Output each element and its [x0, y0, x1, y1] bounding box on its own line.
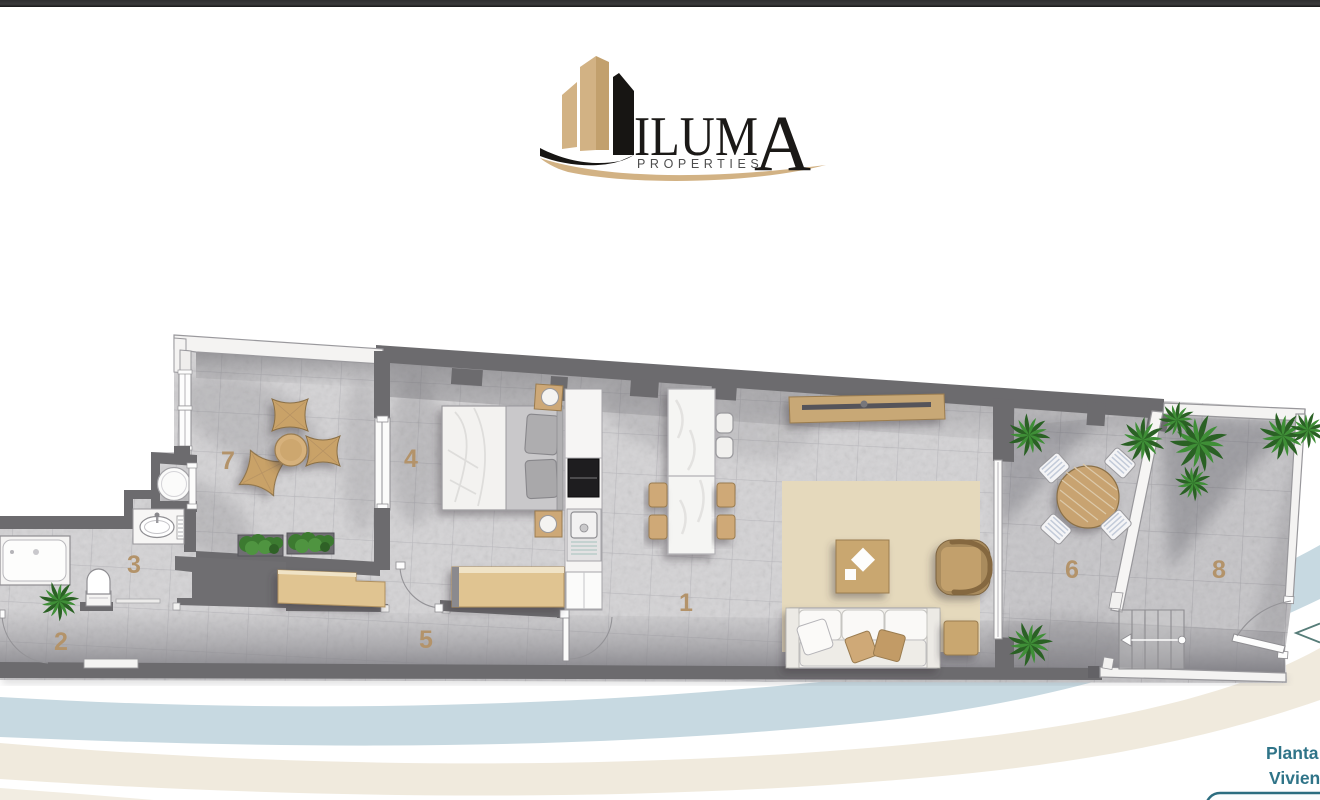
- svg-text:A: A: [754, 101, 811, 188]
- svg-text:6: 6: [1065, 556, 1079, 584]
- svg-text:PROPERTIES: PROPERTIES: [637, 157, 763, 171]
- svg-text:3: 3: [127, 551, 141, 579]
- svg-text:2: 2: [54, 628, 68, 656]
- svg-text:7: 7: [221, 447, 235, 475]
- svg-text:1: 1: [679, 589, 693, 617]
- svg-text:8: 8: [1212, 556, 1226, 584]
- svg-text:Vivienda 1: Vivienda 1: [1269, 768, 1320, 788]
- svg-text:5: 5: [419, 626, 433, 654]
- svg-text:Planta Baja: Planta Baja: [1266, 743, 1320, 763]
- svg-text:4: 4: [404, 445, 418, 473]
